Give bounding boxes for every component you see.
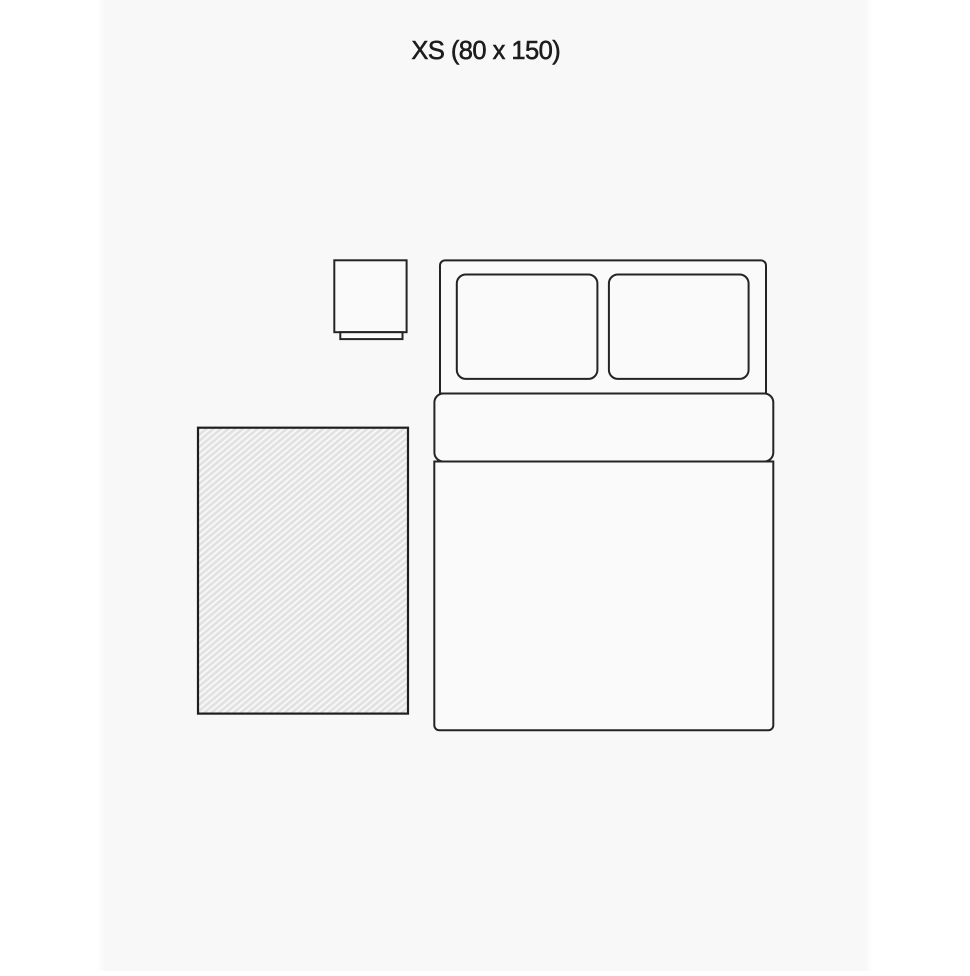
svg-text:XS (80 x 150): XS (80 x 150) [411,37,560,65]
